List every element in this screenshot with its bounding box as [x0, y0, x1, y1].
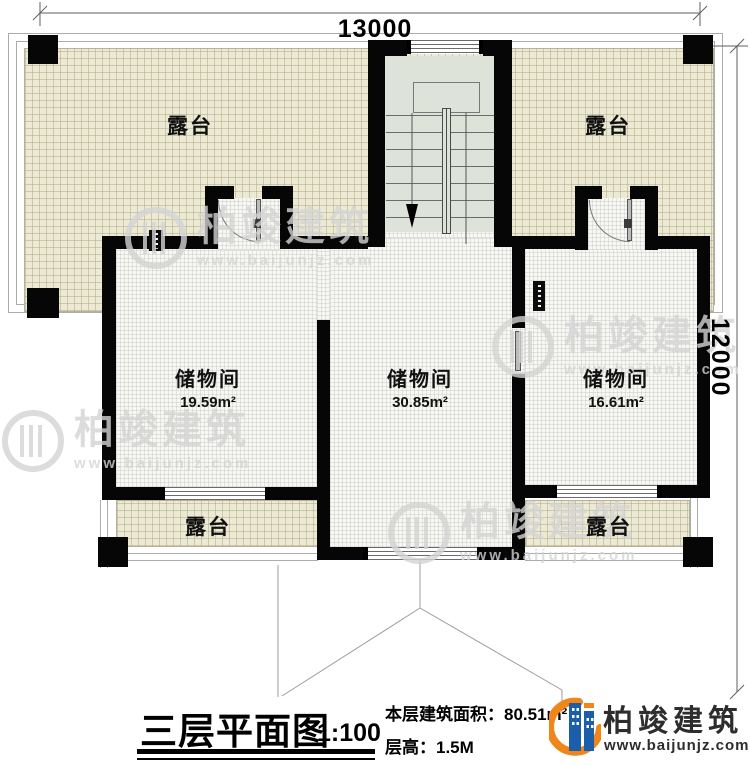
watermark: 柏竣建筑 www.baijunjz.com — [2, 410, 251, 472]
room-area: 16.61m² — [546, 395, 686, 412]
terrace-label-bottom-right: 露台 — [559, 511, 659, 541]
room-label-storage-left: 储物间 19.59m² — [138, 369, 278, 412]
plan-scale: 1:100 — [317, 719, 381, 748]
brand-logo-icon — [549, 697, 601, 759]
terrace-label-top-left: 露台 — [140, 110, 240, 140]
vestibule-left-cap-a — [218, 186, 234, 199]
watermark-text: 柏竣建筑 www.baijunjz.com — [197, 207, 374, 269]
watermark-text: 柏竣建筑 www.baijunjz.com — [74, 410, 251, 472]
stair-center-rail — [442, 108, 451, 234]
window-bottom-right — [552, 485, 662, 498]
floor-height-label: 层高： — [385, 738, 436, 757]
watermark-logo-icon — [388, 502, 450, 564]
watermark-logo-icon — [492, 316, 554, 378]
room-area: 30.85m² — [350, 395, 490, 412]
floor-area-line: 本层建筑面积：80.51m² — [385, 700, 567, 725]
dimension-top-label: 13000 — [300, 15, 450, 44]
corner-column — [98, 537, 128, 567]
vestibule-right-wall-a — [575, 186, 588, 250]
floor-height-value: 1.5M — [436, 738, 474, 757]
corner-column — [28, 35, 58, 64]
wall-divider-left — [317, 320, 330, 560]
corner-column — [683, 537, 713, 567]
watermark-name: 柏竣建筑 — [74, 410, 251, 450]
watermark-url: www.baijunjz.com — [460, 547, 637, 564]
watermark-logo-bars — [20, 425, 46, 457]
brand-url: www.baijunjz.com — [604, 737, 749, 754]
floor-plan: 13000 12000 — [0, 0, 750, 765]
watermark: 柏竣建筑 www.baijunjz.com — [125, 207, 374, 269]
wall-bottom-left-a — [102, 487, 165, 500]
door-frame-detail — [533, 281, 545, 311]
title-underline-thick — [137, 749, 375, 754]
railing-line — [100, 553, 318, 554]
watermark-logo-bars — [510, 331, 536, 363]
room-name: 储物间 — [138, 369, 278, 391]
watermark-url: www.baijunjz.com — [74, 455, 251, 472]
stair-wall-top-right — [483, 40, 512, 56]
watermark-logo-bars — [406, 517, 432, 549]
terrace-label-top-right: 露台 — [558, 110, 658, 140]
plan-title: 三层平面图 — [140, 701, 330, 755]
watermark-logo-icon — [125, 207, 187, 269]
room-label-storage-center: 储物间 30.85m² — [350, 369, 490, 412]
dimension-right-label: 12000 — [705, 318, 734, 398]
stair-steps — [386, 115, 494, 233]
corner-column — [683, 35, 713, 64]
corner-column — [27, 288, 59, 318]
terrace-label-bottom-left: 露台 — [158, 511, 258, 541]
wall-bottom-right-b — [657, 485, 710, 498]
wall-bottom-left-b — [265, 487, 330, 500]
window-bottom-left — [160, 487, 270, 500]
watermark-name: 柏竣建筑 — [197, 207, 374, 247]
watermark-url: www.baijunjz.com — [197, 252, 374, 269]
room-name: 储物间 — [546, 369, 686, 391]
wall-bottom-center-a — [317, 547, 368, 560]
brand-name: 柏竣建筑 — [603, 696, 743, 740]
vestibule-right-wall-b — [645, 186, 658, 250]
floor-height-line: 层高：1.5M — [385, 733, 474, 758]
stair-wall-right — [494, 40, 512, 247]
vestibule-right-cap-a — [588, 186, 602, 199]
vestibule-left-cap-b — [262, 186, 280, 199]
vestibule-right-cap-b — [630, 186, 645, 199]
wall-bottom-right-a — [512, 485, 557, 498]
door-hinge — [624, 219, 632, 228]
room-area: 19.59m² — [138, 395, 278, 412]
room-name: 储物间 — [350, 369, 490, 391]
watermark-logo-bars — [143, 222, 169, 254]
railing-line — [100, 560, 318, 561]
watermark-logo-icon — [2, 410, 64, 472]
title-underline-thin — [137, 758, 375, 760]
room-label-storage-right: 储物间 16.61m² — [546, 369, 686, 412]
floor-area-label: 本层建筑面积： — [385, 705, 504, 724]
